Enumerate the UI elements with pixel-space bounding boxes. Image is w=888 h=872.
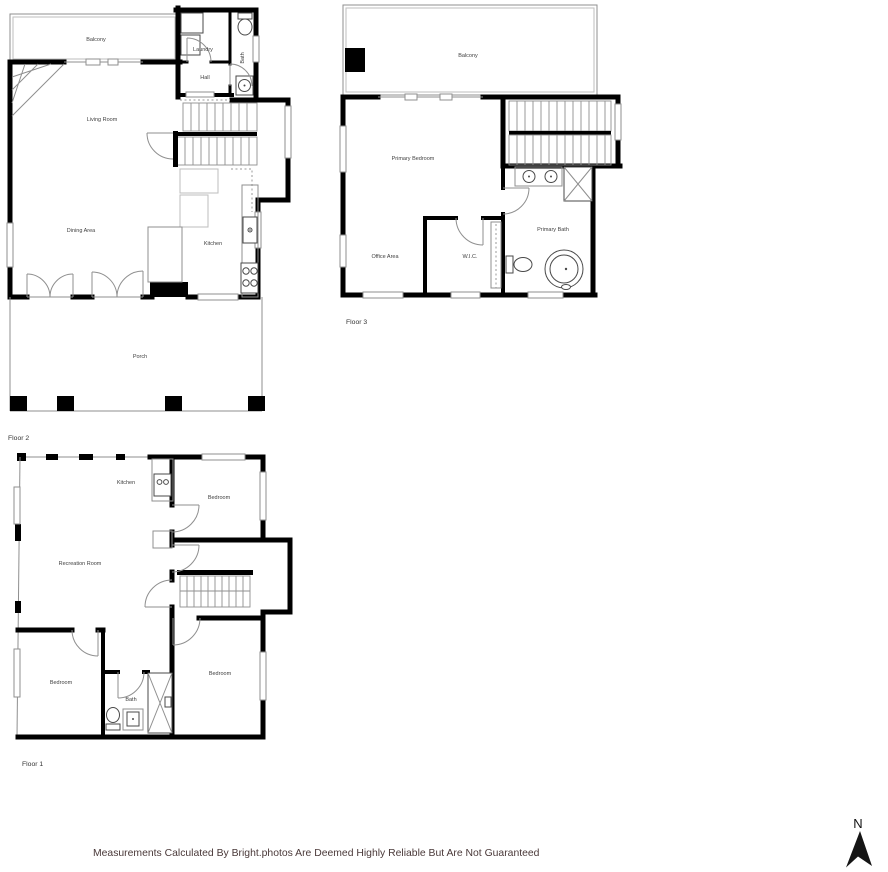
- room-label-floor2-kitchen: Kitchen: [204, 241, 222, 247]
- north-arrow-icon: [846, 831, 872, 868]
- soaking-tub-icon: [545, 250, 583, 290]
- room-label-living-room: Living Room: [87, 117, 118, 123]
- room-label-porch: Porch: [133, 354, 147, 360]
- floor-3-plan: Balcony Primary Bedroom Office Area W.I.…: [340, 5, 621, 326]
- floor-1-label: Floor 1: [22, 761, 43, 768]
- floor1-doors: [72, 505, 200, 698]
- floor-2-plan: Balcony Laundry Bath Hall Living Room Di…: [7, 8, 291, 442]
- floor1-stairs: [177, 570, 253, 607]
- floor3-toilet-icon: [506, 256, 532, 273]
- shower-icon-floor3: [564, 167, 592, 201]
- room-label-laundry: Laundry: [193, 47, 213, 53]
- room-label-primary-bath: Primary Bath: [537, 227, 569, 233]
- floor1-bath-sink-icon: [123, 709, 143, 730]
- shower-icon-floor1: [148, 673, 172, 733]
- room-label-wic: W.I.C.: [463, 254, 478, 260]
- room-label-hall: Hall: [200, 75, 209, 81]
- room-label-floor2-bath: Bath: [240, 52, 246, 63]
- room-label-primary-bedroom: Primary Bedroom: [392, 156, 435, 162]
- floor-2-label: Floor 2: [8, 435, 29, 442]
- floor1-hall-closet: [153, 531, 172, 548]
- floor2-walls: [7, 8, 291, 300]
- floor2-doors: [27, 38, 252, 297]
- room-label-bedroom-top: Bedroom: [208, 495, 231, 501]
- room-label-dining-area: Dining Area: [67, 228, 96, 234]
- compass-north-label: N: [853, 816, 862, 831]
- closet-rod: [491, 222, 501, 288]
- floor3-stairs: [509, 101, 611, 165]
- floor-1-plan: Kitchen Bedroom Recreation Room Bedroom …: [14, 453, 290, 768]
- room-label-floor1-kitchen: Kitchen: [117, 480, 135, 486]
- floor1-toilet-icon: [106, 708, 120, 731]
- room-label-bedroom-right: Bedroom: [209, 671, 232, 677]
- room-label-floor2-balcony: Balcony: [86, 37, 106, 43]
- room-label-recreation-room: Recreation Room: [59, 561, 102, 567]
- floor2-toilet-icon: [238, 13, 252, 35]
- floor1-kitchen-sink-icon: [154, 474, 171, 496]
- floor-plan-image: Balcony Laundry Bath Hall Living Room Di…: [0, 0, 888, 872]
- floor-3-label: Floor 3: [346, 319, 367, 326]
- floor3-balcony: [343, 5, 597, 95]
- compass: N: [846, 816, 872, 868]
- double-vanity-icon: [515, 167, 562, 186]
- floorplan-canvas: Balcony Laundry Bath Hall Living Room Di…: [0, 0, 888, 872]
- floor2-corner-hatch: [12, 64, 64, 116]
- floor2-stairs: [173, 103, 257, 227]
- room-label-floor1-bath: Bath: [125, 697, 136, 703]
- disclaimer-text: Measurements Calculated By Bright.photos…: [93, 848, 540, 859]
- stove-icon: [241, 263, 258, 293]
- room-label-floor3-balcony: Balcony: [458, 53, 478, 59]
- room-label-bedroom-left: Bedroom: [50, 680, 73, 686]
- room-label-office-area: Office Area: [371, 254, 399, 260]
- floor2-kitchen-sink-icon: [243, 217, 257, 243]
